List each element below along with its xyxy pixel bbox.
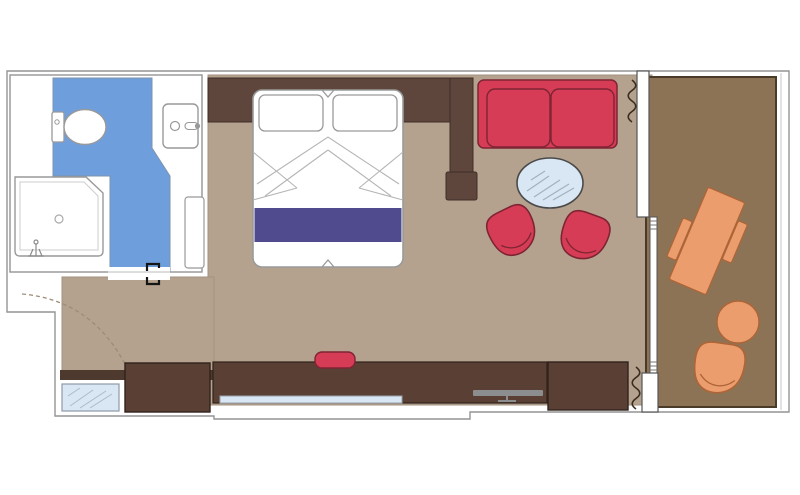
mirror-glass [62,384,119,411]
partition-wall [450,78,473,173]
tv-screen [473,390,543,396]
sink-drain [171,122,180,131]
sofa-cushion-left [487,89,550,147]
sofa [478,80,617,148]
cabinet [548,362,628,410]
toilet-tank [52,112,64,142]
sofa-cushion-right [551,89,614,147]
partition-column [446,172,477,200]
floor-plan-drawing [0,0,800,495]
desk-glass-shelf [220,396,402,403]
coffee-table [517,158,583,208]
sink-faucet-knob [195,123,200,128]
pillow-right [333,95,397,131]
floor-plan [0,0,800,495]
balcony-door [650,217,657,374]
stool [315,352,355,368]
sink [163,104,200,148]
toilet-bowl [64,110,106,145]
coffee-table-glass [517,158,583,208]
balcony-round-table [717,301,759,343]
double-bed [253,90,403,267]
mirror [62,384,119,411]
bathroom-door-panel [185,197,204,268]
toilet-flush-button [55,120,59,124]
wardrobe [125,363,210,412]
entry-floor [62,277,214,373]
bathroom-door-threshold [108,267,170,280]
shower-drain [55,215,63,223]
shower [15,177,103,256]
balcony-door-glass [650,217,657,374]
window-wall [637,71,649,217]
toilet [52,110,106,145]
pillow-left [259,95,323,131]
window-wall-lower [642,373,658,412]
bed-runner [255,208,402,242]
